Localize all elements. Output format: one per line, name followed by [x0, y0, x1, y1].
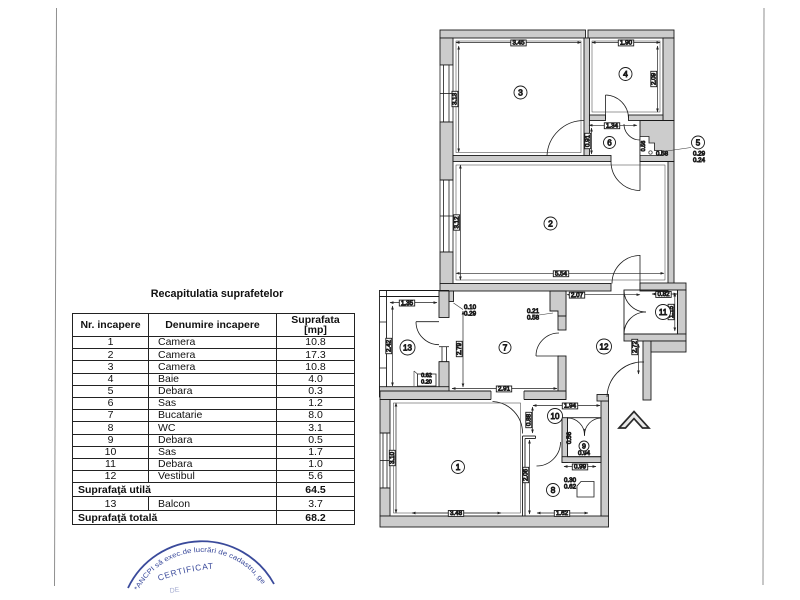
svg-text:0.99: 0.99: [574, 464, 587, 471]
svg-text:0.58: 0.58: [527, 315, 540, 322]
svg-text:7: 7: [503, 343, 508, 353]
svg-text:11: 11: [659, 308, 668, 317]
svg-text:0.62: 0.62: [421, 373, 432, 379]
svg-text:3.10: 3.10: [389, 451, 396, 464]
svg-text:2: 2: [548, 219, 553, 229]
svg-text:4: 4: [623, 69, 628, 79]
svg-text:DE: DE: [169, 587, 180, 595]
svg-text:0.62: 0.62: [564, 484, 577, 491]
svg-text:9: 9: [582, 444, 586, 451]
svg-text:6: 6: [607, 138, 612, 147]
svg-text:2.42: 2.42: [386, 339, 393, 352]
svg-text:3.13: 3.13: [452, 92, 459, 105]
svg-text:0.24: 0.24: [693, 157, 706, 164]
svg-text:3.45: 3.45: [512, 40, 525, 47]
svg-text:0.20: 0.20: [421, 380, 432, 386]
svg-text:13: 13: [403, 343, 412, 352]
svg-text:3.12: 3.12: [453, 216, 460, 229]
svg-text:3.48: 3.48: [450, 510, 463, 517]
svg-text:2.09: 2.09: [651, 72, 658, 85]
svg-text:0.91: 0.91: [585, 134, 592, 147]
svg-text:2.79: 2.79: [456, 342, 463, 355]
svg-text:10: 10: [551, 412, 560, 421]
svg-text:0.56: 0.56: [566, 431, 573, 444]
svg-text:2.72: 2.72: [632, 340, 639, 353]
svg-text:0.58: 0.58: [656, 151, 669, 158]
svg-text:1.90: 1.90: [620, 40, 633, 47]
svg-text:2.91: 2.91: [498, 386, 511, 393]
svg-text:5.54: 5.54: [555, 271, 568, 278]
svg-text:0.82: 0.82: [657, 291, 670, 298]
svg-text:1.35: 1.35: [401, 300, 414, 307]
svg-text:0.88: 0.88: [526, 413, 533, 426]
svg-text:8: 8: [551, 485, 556, 495]
svg-text:3: 3: [518, 88, 523, 98]
svg-text:12: 12: [600, 342, 609, 351]
svg-text:2.06: 2.06: [523, 468, 530, 481]
svg-text:1.94: 1.94: [564, 403, 577, 410]
svg-text:0.56: 0.56: [641, 141, 647, 152]
svg-text:2.07: 2.07: [571, 292, 584, 299]
svg-text:1.62: 1.62: [556, 510, 569, 517]
svg-text:0.29: 0.29: [464, 311, 477, 318]
svg-text:1.34: 1.34: [606, 123, 619, 130]
svg-text:5: 5: [696, 138, 701, 147]
svg-text:1: 1: [456, 462, 461, 472]
